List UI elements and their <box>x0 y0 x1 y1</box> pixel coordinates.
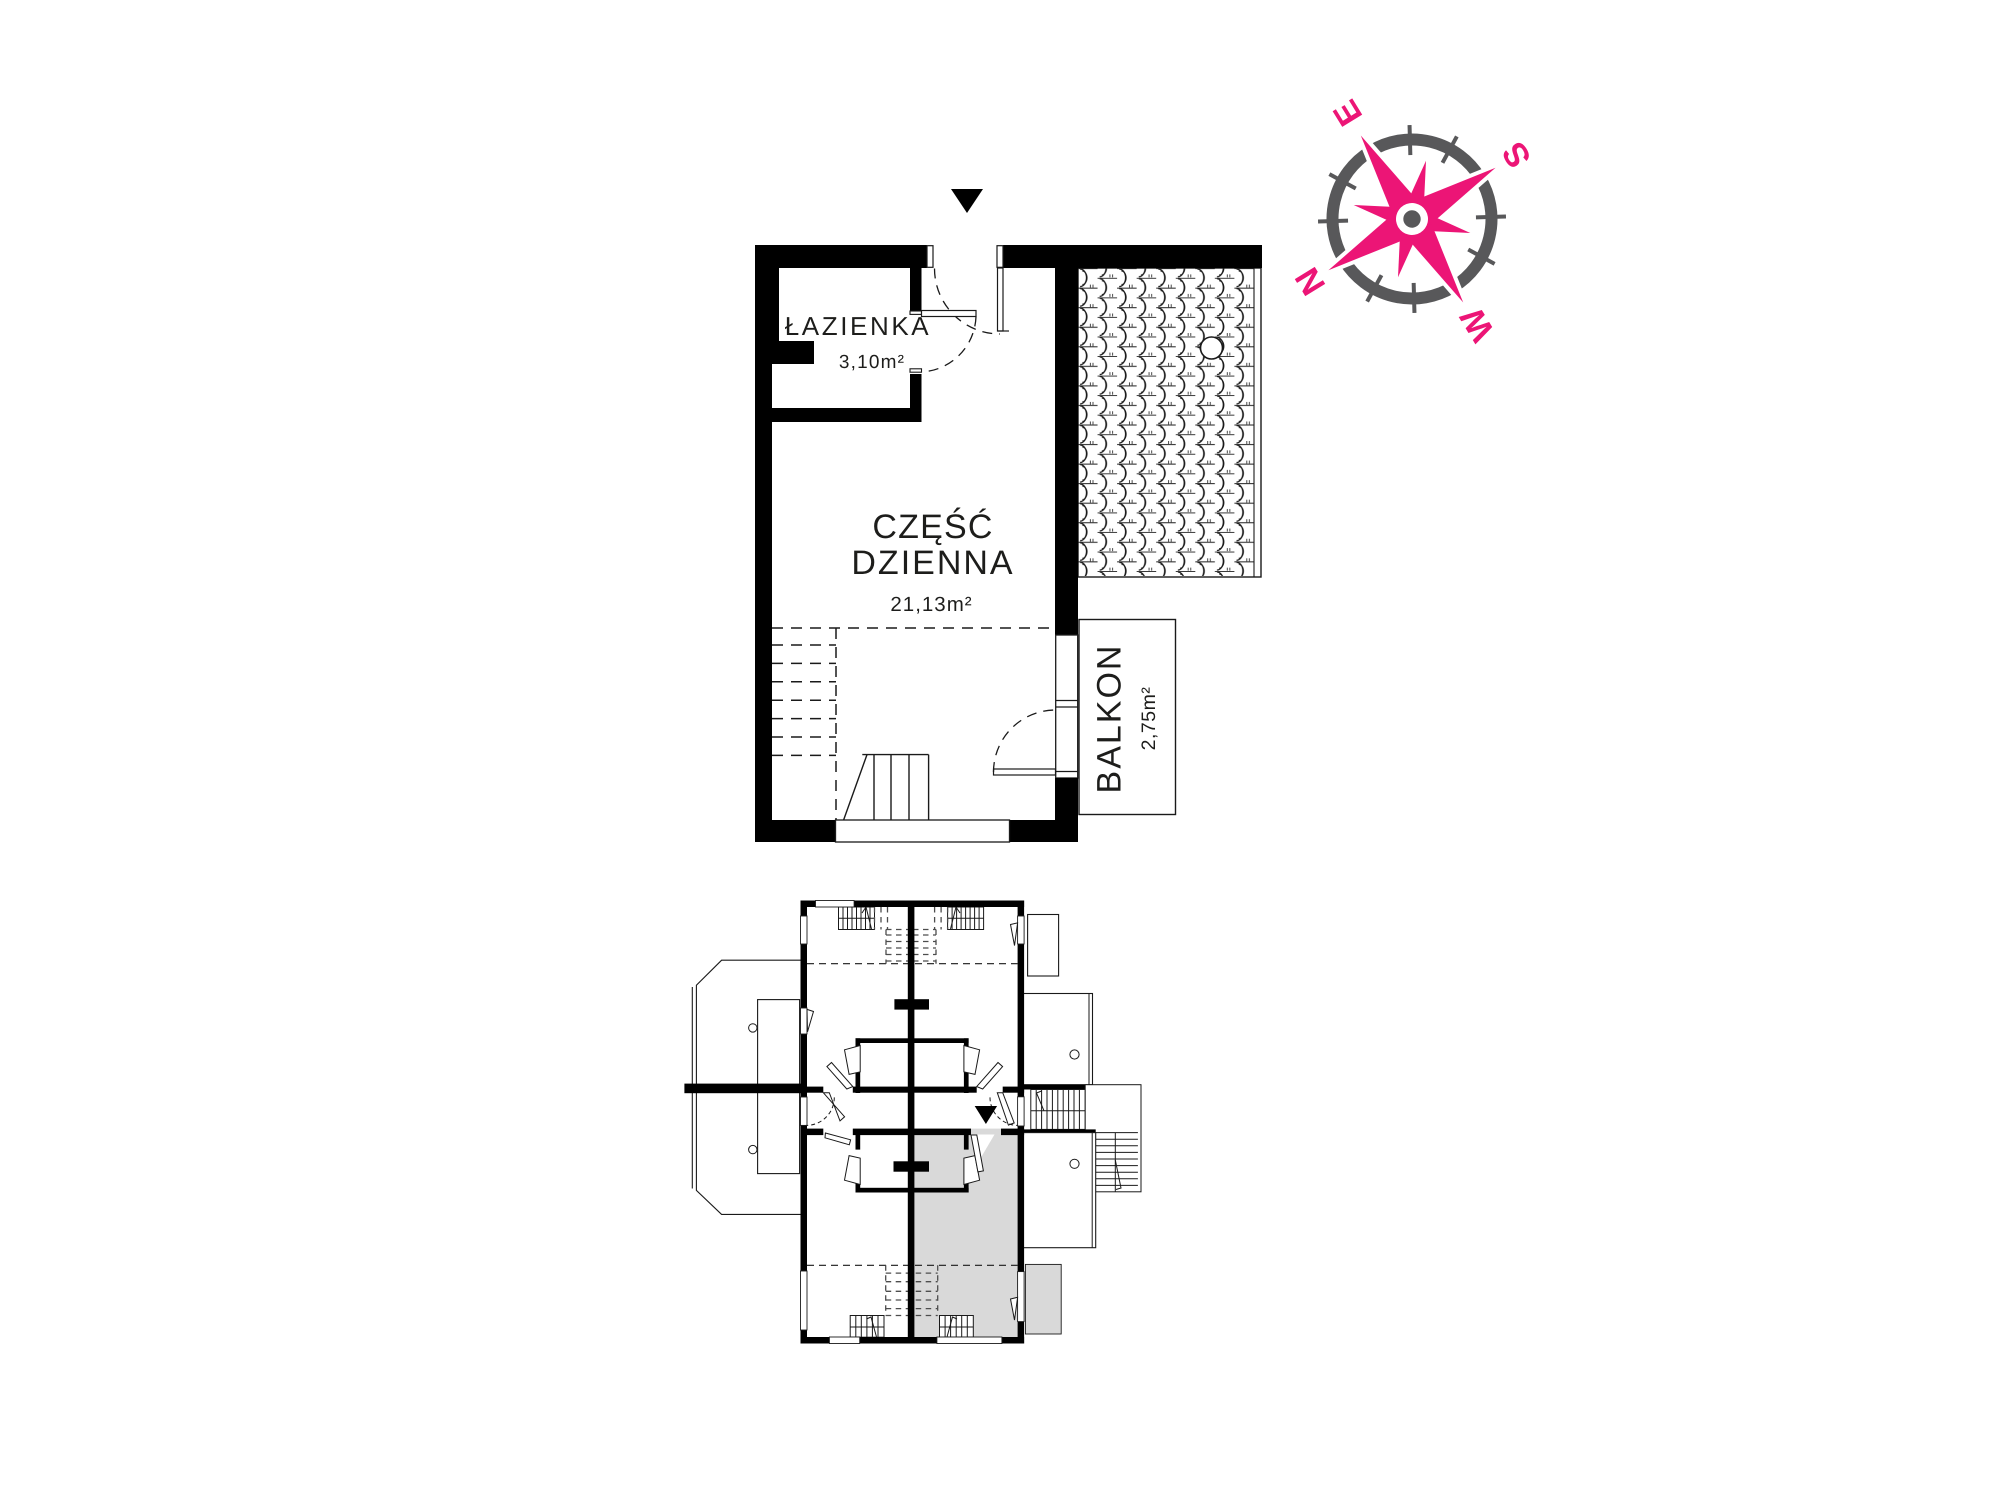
svg-text:BALKON: BALKON <box>1091 644 1129 794</box>
svg-text:3,10m²: 3,10m² <box>839 352 905 373</box>
svg-text:CZĘŚĆ: CZĘŚĆ <box>872 507 993 546</box>
svg-text:ŁAZIENKA: ŁAZIENKA <box>785 311 932 341</box>
svg-text:21,13m²: 21,13m² <box>890 593 972 616</box>
svg-text:DZIENNA: DZIENNA <box>851 544 1014 582</box>
svg-text:2,75m²: 2,75m² <box>1138 687 1160 751</box>
